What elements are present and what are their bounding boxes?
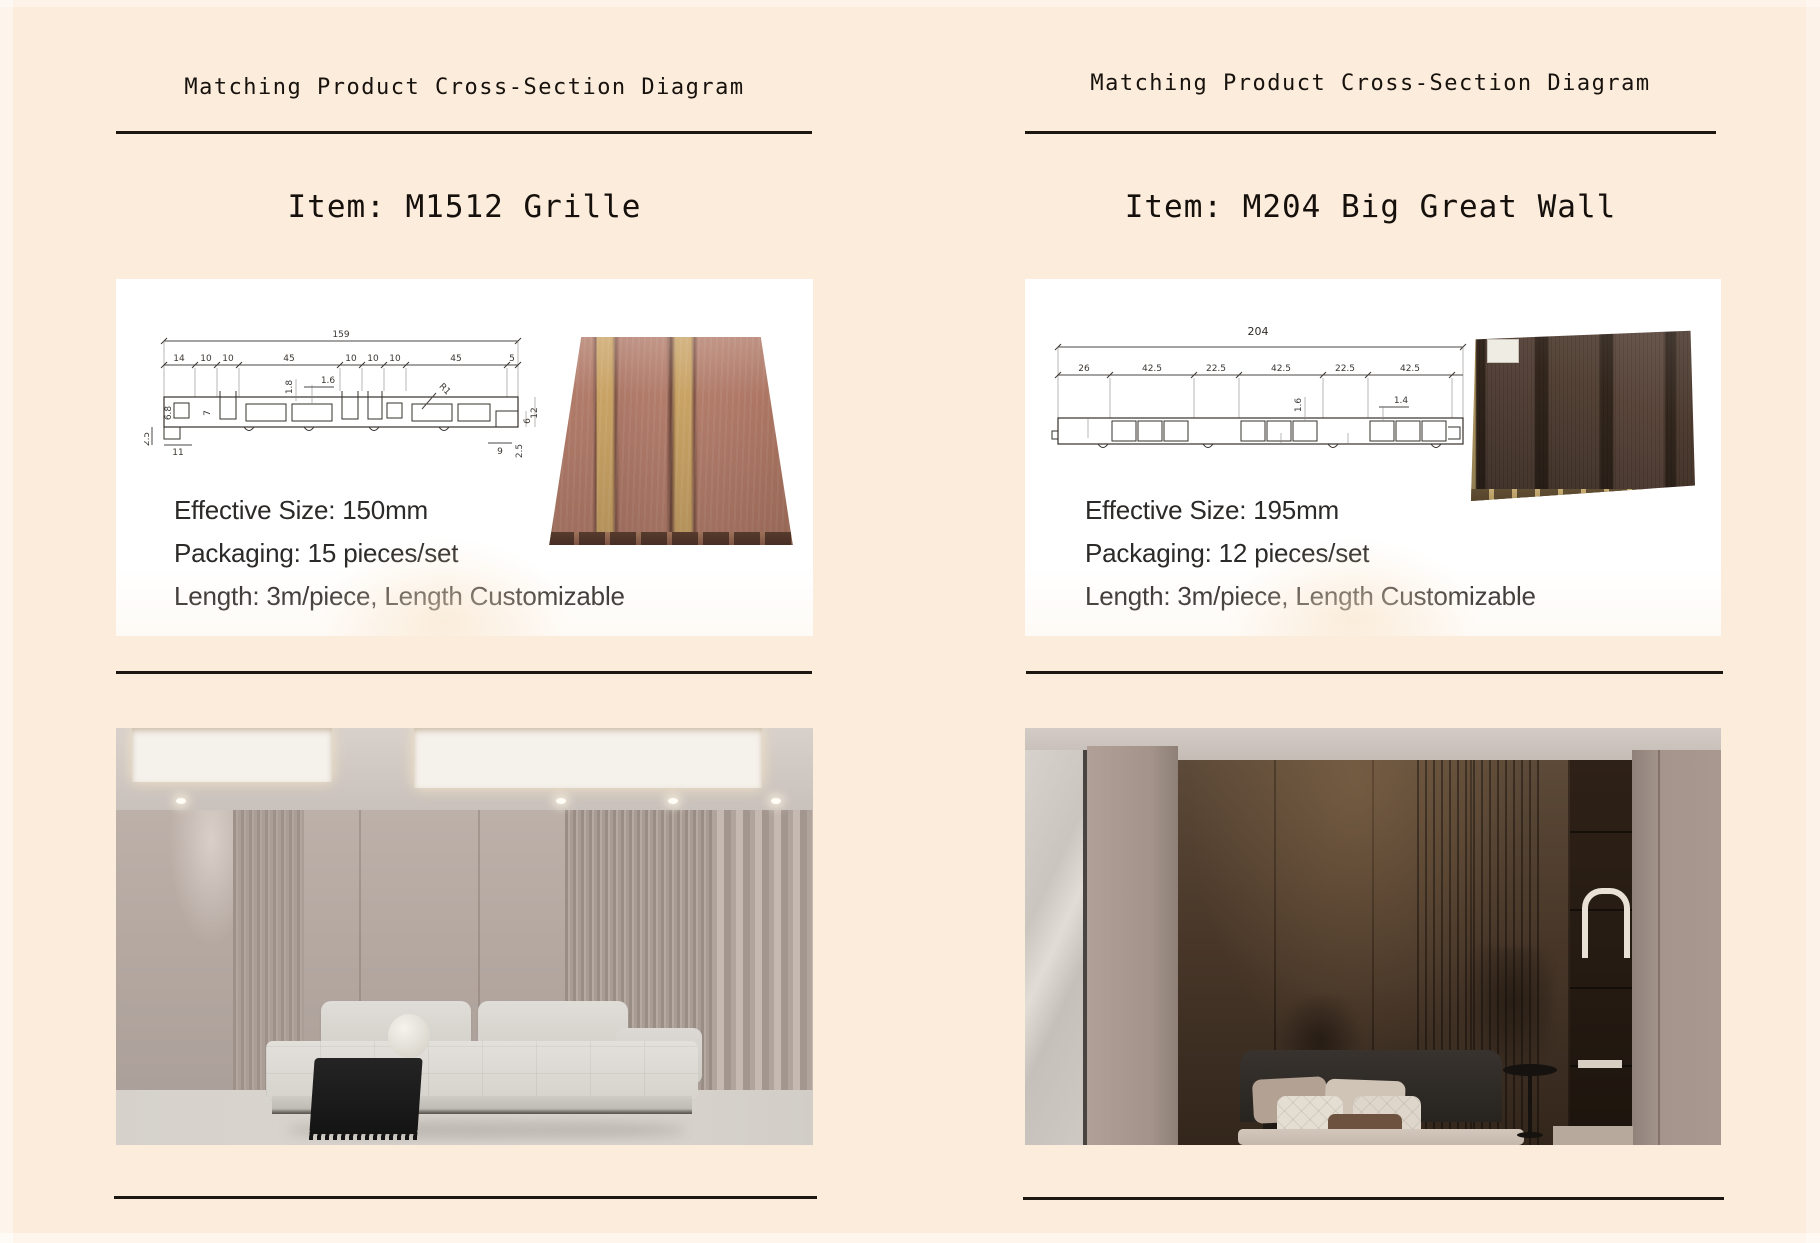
floor-patch [1553, 1126, 1633, 1145]
ceiling-cove-light [414, 728, 762, 788]
left-spec-length: Length: 3m/piece, Length Customizable [174, 575, 625, 618]
dimension-label: 22.5 [1335, 364, 1355, 374]
shelf-niche [1570, 760, 1632, 1145]
left-spec-size: Effective Size: 150mm [174, 489, 625, 532]
left-mid-divider [116, 671, 812, 674]
side-table-leg [1528, 1072, 1532, 1134]
downlight [176, 798, 186, 804]
right-spec-length: Length: 3m/piece, Length Customizable [1085, 575, 1536, 618]
left-spec-packaging: Packaging: 15 pieces/set [174, 532, 625, 575]
bed-duvet [1238, 1129, 1524, 1145]
left-item-title: Item: M1512 Grille [116, 184, 813, 230]
product-sticker-label [1487, 339, 1519, 363]
right-room-photo [1025, 728, 1721, 1145]
dimension-label: 6.8 [164, 406, 174, 421]
downlight [771, 798, 781, 804]
dimension-label: 10 [345, 354, 357, 364]
dimension-label: 45 [283, 354, 294, 364]
dimension-label: 42.5 [1400, 364, 1420, 374]
dimension-label: 14 [173, 354, 185, 364]
left-room-photo [116, 728, 813, 1145]
catalog-page: Matching Product Cross-Section Diagram I… [0, 0, 1820, 1243]
page-edge-right [1806, 0, 1820, 1243]
left-spec-text: Effective Size: 150mm Packaging: 15 piec… [174, 489, 625, 618]
dimension-label: R1 [437, 382, 453, 398]
dimension-label: 159 [332, 330, 349, 340]
downlight [668, 798, 678, 804]
curtain [712, 810, 813, 1132]
left-section-header: Matching Product Cross-Section Diagram [116, 72, 813, 104]
right-product-photo [1471, 329, 1695, 501]
dimension-label: 1.6 [1294, 398, 1304, 413]
dimension-label: 42.5 [1142, 364, 1162, 374]
dimension-label: 10 [389, 354, 401, 364]
dimension-label: 1.6 [321, 376, 336, 386]
dimension-label: 45 [450, 354, 461, 364]
wardrobe-right [1632, 750, 1721, 1145]
dimension-label: 5 [509, 354, 515, 364]
left-cross-section-diagram: 159 14 10 10 45 10 10 [144, 327, 539, 479]
left-header-underline [116, 131, 812, 134]
left-bottom-rule [114, 1196, 817, 1199]
left-spec-card: 159 14 10 10 45 10 10 [116, 279, 813, 636]
room-ceiling [116, 728, 813, 810]
right-item-title: Item: M204 Big Great Wall [1025, 184, 1716, 230]
right-spec-text: Effective Size: 195mm Packaging: 12 piec… [1085, 489, 1536, 618]
dimension-label: 1.4 [1394, 396, 1409, 406]
page-edge-left [0, 0, 13, 1243]
right-mid-divider [1026, 671, 1723, 674]
dimension-label: 2.5 [144, 432, 152, 446]
right-bottom-rule [1023, 1197, 1724, 1200]
dimension-label: 10 [367, 354, 379, 364]
black-throw-blanket [309, 1058, 422, 1134]
dimension-label: 12 [530, 407, 539, 418]
dimension-label: 9 [497, 447, 503, 457]
ceiling-cove-light [132, 728, 332, 782]
dimension-label: 42.5 [1271, 364, 1291, 374]
wardrobe-left [1087, 746, 1178, 1145]
dimension-label: 2.5 [515, 444, 525, 458]
right-spec-packaging: Packaging: 12 pieces/set [1085, 532, 1536, 575]
right-section-header: Matching Product Cross-Section Diagram [1025, 68, 1716, 100]
right-spec-size: Effective Size: 195mm [1085, 489, 1536, 532]
dimension-label: 7 [203, 410, 213, 416]
mirror-panel [1025, 750, 1087, 1145]
shelf-books [1578, 1060, 1622, 1068]
dimension-label: 11 [172, 448, 183, 458]
dimension-label: 10 [222, 354, 234, 364]
downlight [556, 798, 566, 804]
right-spec-card: 204 26 42.5 22.5 42.5 22.5 42. [1025, 279, 1721, 636]
page-edge-top [0, 0, 1820, 7]
dimension-label: 10 [200, 354, 212, 364]
right-header-underline [1025, 131, 1716, 134]
dimension-label: 204 [1248, 325, 1269, 338]
dimension-label: 22.5 [1206, 364, 1226, 374]
page-edge-bottom [0, 1233, 1820, 1243]
side-table-base [1517, 1132, 1543, 1138]
arch-decor [1582, 888, 1630, 958]
dimension-label: 1.8 [285, 380, 295, 395]
ball-pillow [388, 1014, 430, 1058]
right-cross-section-diagram: 204 26 42.5 22.5 42.5 22.5 42. [1043, 323, 1475, 475]
dimension-label: 26 [1078, 364, 1090, 374]
